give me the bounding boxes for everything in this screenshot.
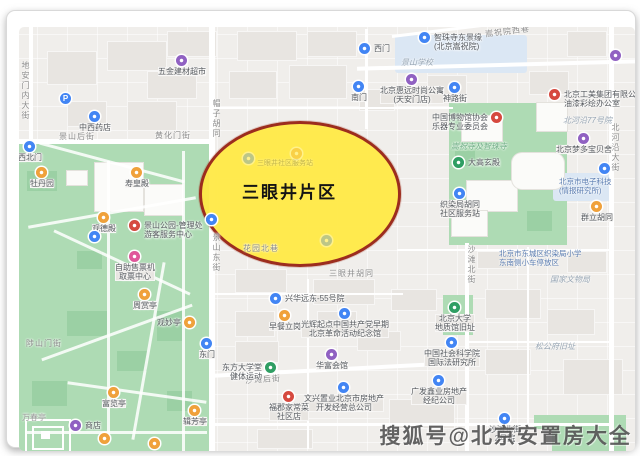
map-poi[interactable]: 福郡家常菜社区店 [283, 391, 295, 403]
map-poi[interactable]: 光辉起点中国共产党早期北京革命活动纪念馆 [339, 308, 351, 320]
area-label: 国家文物局 [550, 275, 590, 285]
purple-poi-icon[interactable] [610, 50, 621, 61]
blue-poi-icon[interactable] [353, 81, 364, 92]
street-line [527, 247, 529, 427]
red-poi-icon[interactable] [283, 391, 294, 402]
blue-poi-icon[interactable] [206, 214, 217, 225]
street-line [307, 279, 309, 449]
map-poi[interactable]: 北京工美集团有限公司油漆彩绘办公室 [549, 89, 561, 101]
tree-patch [527, 211, 552, 231]
map-poi[interactable]: 智珠寺东景缘(北京嵩祝院) [419, 32, 431, 44]
map-building [127, 101, 177, 131]
map-building [229, 71, 277, 99]
tree-patch [32, 381, 67, 406]
orange-poi-icon[interactable] [149, 438, 160, 449]
poi-label: 北京工美集团有限公司油漆彩绘办公室 [564, 90, 635, 108]
orange-poi-icon[interactable] [36, 167, 47, 178]
article-image: 三眼井片区 地安门内大街帽子胡同景山东街北河沿大街沙滩北街景山后街黄化门街沙滩后… [0, 0, 640, 456]
street-label: 地安门内大街 [20, 61, 31, 121]
map-building [567, 31, 607, 57]
map-poi[interactable]: 兴华远东-55号院 [270, 293, 282, 305]
map-poi[interactable]: 广发鑫业房地产经纪公司 [433, 375, 445, 387]
poi-label: 辑芳亭 [183, 417, 207, 426]
map-building [485, 349, 531, 375]
street-line [213, 107, 453, 109]
red-poi-icon[interactable] [129, 220, 140, 231]
map-poi[interactable]: 中国社会科学院国际法研究所 [446, 337, 458, 349]
poi-label: 东门 [199, 350, 215, 359]
map-poi[interactable] [291, 148, 303, 160]
blue-poi-icon[interactable] [419, 32, 430, 43]
blue-poi-icon[interactable] [201, 338, 212, 349]
street-label: 黄化门街 [155, 130, 191, 141]
green-poi-icon[interactable] [449, 302, 460, 313]
poi-label: 牡丹园 [30, 179, 54, 188]
poi-label: 中国博物馆协会乐器专业委员会 [432, 113, 488, 131]
map-poi[interactable] [206, 214, 218, 226]
poi-label: 景山公园-管理处游客服务中心 [144, 221, 203, 239]
highlight-ellipse: 三眼井片区 [199, 121, 401, 267]
poi-label: 富览亭 [102, 399, 126, 408]
orange-poi-icon[interactable] [99, 433, 110, 444]
compound-building [512, 153, 564, 189]
map-poi[interactable]: 织染局胡同社区服务站 [454, 188, 466, 200]
map-poi[interactable]: 大高玄殿 [453, 157, 465, 169]
map-poi[interactable]: 五金建材超市 [176, 55, 188, 67]
purple-poi-icon[interactable] [406, 74, 417, 85]
blue-poi-icon[interactable] [359, 43, 370, 54]
poi-label: 北京梦多宝贝舍 [556, 145, 612, 154]
orange-poi-icon[interactable] [591, 201, 602, 212]
map-frame: 三眼井片区 地安门内大街帽子胡同景山东街北河沿大街沙滩北街景山后街黄化门街沙滩后… [6, 10, 636, 448]
map-poi[interactable]: 早餐立岗 [279, 310, 291, 322]
map-poi[interactable]: 商店 [70, 420, 82, 432]
poi-label: 织染局胡同社区服务站 [440, 200, 480, 218]
map-poi[interactable]: P [60, 93, 72, 105]
map-poi[interactable]: 观德殿 [98, 212, 110, 224]
poi-label: 中西药店 [79, 123, 111, 132]
map-poi[interactable]: 北京梦多宝贝舍 [578, 133, 590, 145]
blue-poi-icon[interactable] [599, 163, 610, 174]
map-poi[interactable]: 景山公园-管理处游客服务中心 [129, 220, 141, 232]
street-label: 沙滩北街 [466, 245, 477, 285]
map-poi[interactable]: 寿皇殿 [131, 167, 143, 179]
area-label: 万春亭 [22, 413, 46, 423]
blue-poi-icon[interactable] [243, 153, 254, 164]
area-label: 景山学校 [401, 58, 433, 68]
map-poi[interactable] [321, 235, 333, 247]
street-label: 花园北巷 [243, 243, 279, 254]
red-poi-icon[interactable] [549, 89, 560, 100]
poi-label: 大高玄殿 [468, 158, 500, 167]
map-poi[interactable]: 观妙亭 [184, 317, 196, 329]
blue-poi-icon[interactable] [433, 375, 444, 386]
purple-poi-icon[interactable] [70, 420, 81, 431]
blue-poi-icon[interactable] [454, 188, 465, 199]
orange-poi-icon[interactable] [291, 148, 302, 159]
street-label: 帽子胡同 [211, 99, 222, 139]
purple-poi-icon[interactable] [326, 349, 337, 360]
map-poi[interactable]: 中国博物馆协会乐器专业委员会 [491, 112, 503, 124]
map-canvas[interactable]: 三眼井片区 地安门内大街帽子胡同景山东街北河沿大街沙滩北街景山后街黄化门街沙滩后… [19, 27, 635, 451]
purple-poi-icon[interactable] [578, 133, 589, 144]
blue-poi-icon[interactable]: P [60, 93, 71, 104]
map-building [235, 341, 279, 363]
poi-label: 兴华远东-55号院 [285, 294, 345, 303]
blue-poi-icon[interactable] [270, 293, 281, 304]
map-building [47, 51, 97, 85]
pink-poi-icon[interactable] [129, 251, 140, 262]
map-poi[interactable]: 西北门 [24, 141, 36, 153]
map-poi[interactable]: 牡丹园 [36, 167, 48, 179]
map-poi[interactable]: 神路街 [449, 82, 461, 94]
watermark: 搜狐号@北京安置房大全 [380, 420, 632, 450]
poi-label: 自助售票机取票中心 [115, 263, 155, 281]
blue-poi-icon[interactable] [89, 231, 100, 242]
tree-patch [117, 351, 147, 371]
poi-label: 东方大学堂健体运动 [222, 363, 262, 381]
park-building [67, 171, 87, 185]
blue-poi-icon[interactable] [339, 308, 350, 319]
orange-poi-icon[interactable] [279, 310, 290, 321]
blue-poi-icon[interactable] [89, 111, 100, 122]
map-poi[interactable]: 中西药店 [89, 111, 101, 123]
purple-poi-icon[interactable] [176, 55, 187, 66]
poi-label: 神路街 [443, 94, 467, 103]
orange-poi-icon[interactable] [98, 212, 109, 223]
map-building [289, 65, 347, 99]
map-poi[interactable] [149, 438, 161, 450]
orange-poi-icon[interactable] [189, 405, 200, 416]
green-poi-icon[interactable] [453, 157, 464, 168]
blue-poi-icon[interactable] [24, 141, 35, 152]
map-poi[interactable] [243, 153, 255, 165]
street-label: 三眼井胡同 [329, 268, 374, 279]
map-poi[interactable]: 辑芳亭 [189, 405, 201, 417]
map-building [563, 359, 623, 395]
map-poi[interactable]: 北京大学地质馆旧址 [449, 302, 461, 314]
poi-label: 西北门 [19, 153, 42, 162]
blue-poi-icon[interactable] [321, 235, 332, 246]
area-label: 松公府旧址 [535, 342, 575, 352]
blue-poi-icon[interactable] [338, 382, 349, 393]
green-poi-icon[interactable] [265, 362, 276, 373]
highlight-label: 三眼井片区 [242, 178, 337, 203]
poi-label: 观妙亭 [157, 318, 181, 327]
red-poi-icon[interactable] [491, 112, 502, 123]
wanchunting-structure [25, 419, 71, 451]
area-label: 三眼井社区服务站 [257, 160, 313, 169]
street-label: 陟山门街 [26, 338, 62, 349]
poi-label: 北京惠远时尚公寓(天安门店) [380, 86, 444, 104]
orange-poi-icon[interactable] [108, 387, 119, 398]
poi-label: 南门 [351, 93, 367, 102]
map-building [257, 429, 313, 449]
poi-label: 商店 [85, 421, 101, 430]
map-building [307, 31, 357, 57]
map-poi[interactable] [599, 163, 611, 175]
map-poi[interactable]: 文兴置业北京市房地产开发经营总公司 [338, 382, 350, 394]
map-building [237, 31, 297, 61]
map-poi[interactable] [99, 433, 111, 445]
map-poi[interactable]: 北京惠远时尚公寓(天安门店) [406, 74, 418, 86]
poi-label: 智珠寺东景缘(北京嵩祝院) [434, 33, 482, 51]
street-label: 景山东街 [211, 233, 222, 273]
map-building [235, 269, 287, 293]
map-poi[interactable] [89, 231, 101, 243]
area-label: 嵩祝寺及智珠寺 [451, 142, 507, 152]
poi-label: 群立胡同 [581, 213, 613, 222]
map-poi[interactable]: 群立胡同 [591, 201, 603, 213]
map-poi[interactable]: 自助售票机取票中心 [129, 251, 141, 263]
map-poi[interactable]: 东方大学堂健体运动 [265, 362, 277, 374]
poi-label: 五金建材超市 [158, 67, 206, 76]
area-label: 北河沿77号院 [563, 116, 612, 126]
area-label: 北京市东城区织染局小学东南侧小车停放区 [499, 249, 582, 268]
poi-label: 西门 [374, 44, 390, 53]
map-poi[interactable]: 周赏亭 [139, 289, 151, 301]
orange-poi-icon[interactable] [139, 289, 150, 300]
poi-label: 光辉起点中国共产党早期北京革命活动纪念馆 [301, 320, 389, 338]
blue-poi-icon[interactable] [449, 82, 460, 93]
orange-poi-icon[interactable] [131, 167, 142, 178]
poi-label: 北京大学地质馆旧址 [435, 314, 475, 332]
orange-poi-icon[interactable] [184, 317, 195, 328]
map-poi[interactable]: 南门 [353, 81, 365, 93]
street-label: 景山后街 [59, 131, 95, 142]
map-poi[interactable]: 西门 [359, 43, 371, 55]
map-building [547, 309, 595, 335]
poi-label: 寿皇殿 [125, 179, 149, 188]
park-path [182, 151, 185, 451]
map-poi[interactable] [610, 50, 622, 62]
poi-label: 文兴置业北京市房地产开发经营总公司 [304, 394, 384, 412]
blue-poi-icon[interactable] [446, 337, 457, 348]
map-poi[interactable]: 东门 [201, 338, 213, 350]
poi-label: 华富会馆 [316, 361, 348, 370]
poi-label: 周赏亭 [133, 301, 157, 310]
poi-label: 广发鑫业房地产经纪公司 [411, 387, 467, 405]
tree-patch [77, 251, 102, 269]
map-poi[interactable]: 富览亭 [108, 387, 120, 399]
area-label: 北京市电子科技(情报研究所) [559, 177, 612, 196]
poi-label: 中国社会科学院国际法研究所 [424, 349, 480, 367]
map-building [485, 289, 541, 319]
map-world: 三眼井片区 地安门内大街帽子胡同景山东街北河沿大街沙滩北街景山后街黄化门街沙滩后… [19, 27, 635, 451]
poi-label: 早餐立岗 [269, 322, 301, 331]
tree-patch [67, 311, 107, 336]
poi-label: 福郡家常菜社区店 [269, 403, 309, 421]
map-poi[interactable]: 华富会馆 [326, 349, 338, 361]
